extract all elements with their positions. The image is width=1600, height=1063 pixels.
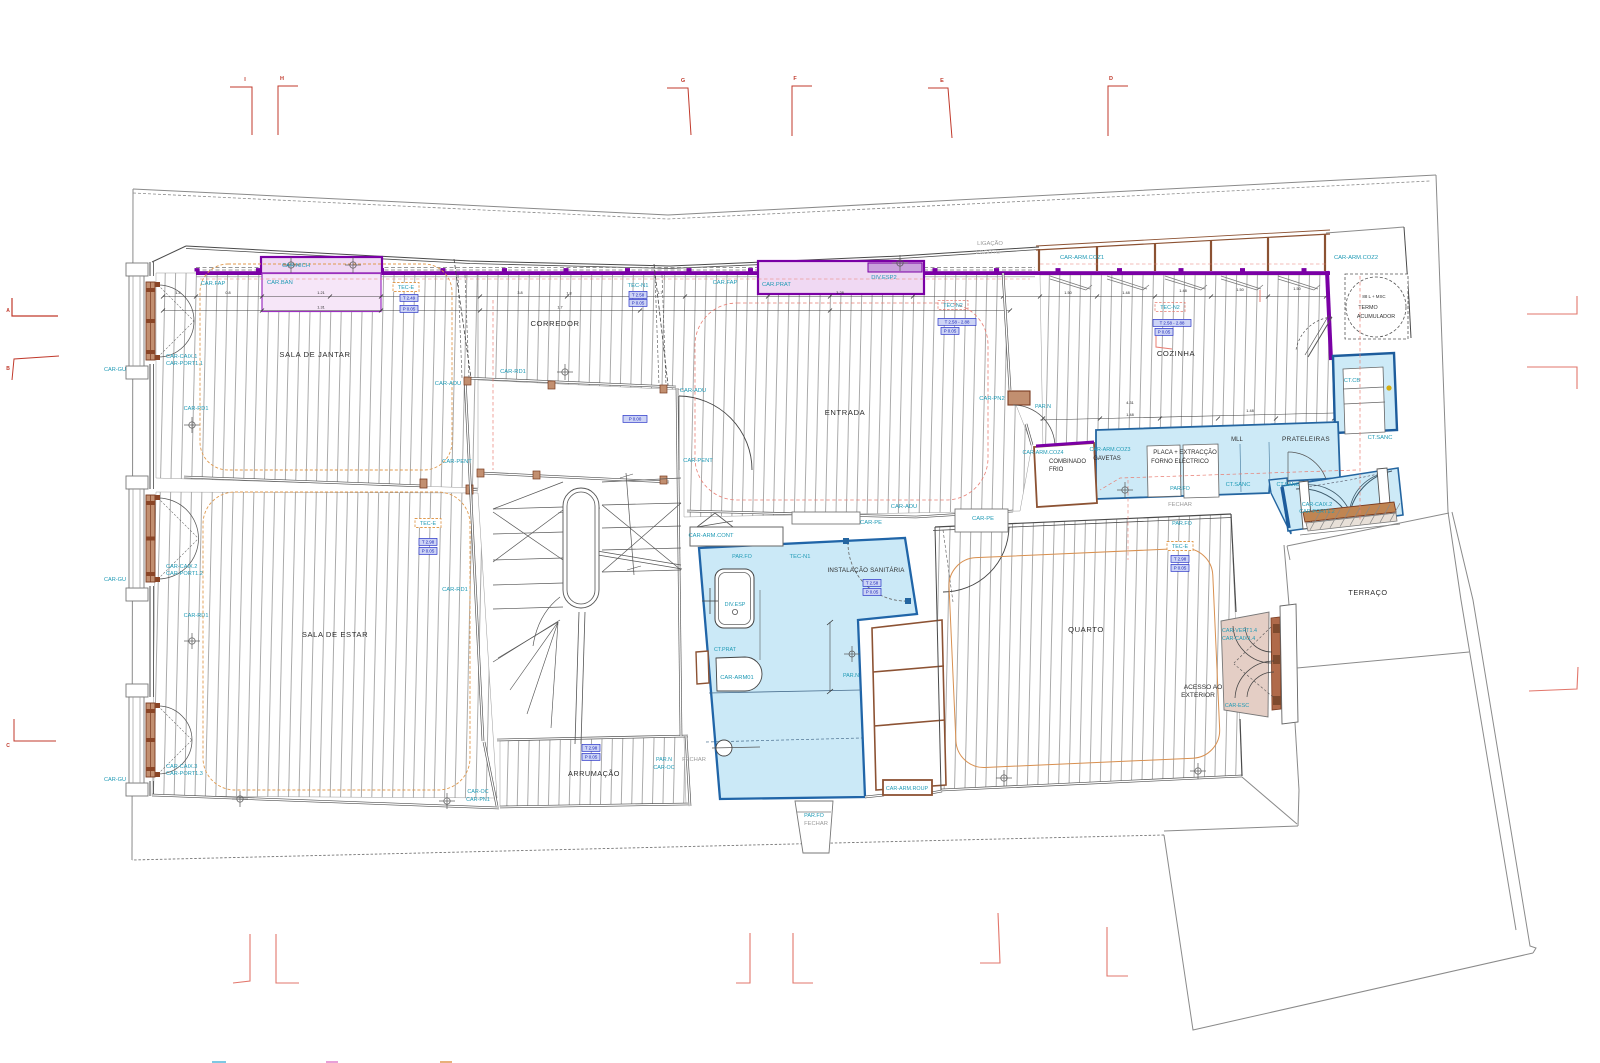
svg-text:P 0.05: P 0.05 [944,329,957,334]
svg-text:TERRAÇO: TERRAÇO [1348,588,1387,597]
svg-text:CORREDOR: CORREDOR [530,319,579,328]
svg-text:H: H [280,76,284,82]
svg-text:E: E [940,78,944,84]
svg-text:CAR-RD1: CAR-RD1 [184,613,209,619]
svg-text:3.28: 3.28 [836,291,843,295]
svg-text:CAR.FAP: CAR.FAP [713,280,738,286]
svg-text:CAR-ARM.COZ1: CAR-ARM.COZ1 [1060,255,1104,261]
svg-text:CAR-RD1: CAR-RD1 [500,369,526,375]
svg-text:CAR-GU: CAR-GU [104,577,126,583]
svg-text:CAR-ARM.CONT: CAR-ARM.CONT [688,533,734,539]
svg-text:CAR-ADU: CAR-ADU [435,381,461,387]
svg-text:COZINHA: COZINHA [1157,349,1196,358]
svg-text:TEC-E: TEC-E [398,285,415,291]
svg-text:CAR-VERT1.4: CAR-VERT1.4 [1222,628,1257,634]
svg-text:COMBINADO: COMBINADO [1049,459,1086,465]
svg-text:CT.PRAT: CT.PRAT [714,647,737,653]
svg-text:PAR.N: PAR.N [1035,404,1051,410]
svg-text:TEC-N1: TEC-N1 [790,554,811,560]
svg-text:ARRUMAÇÃO: ARRUMAÇÃO [568,769,620,778]
svg-text:C: C [6,743,10,749]
svg-text:CAR-PN2: CAR-PN2 [979,396,1004,402]
svg-text:DIV.ESP2: DIV.ESP2 [871,275,897,281]
svg-text:1.48: 1.48 [1246,409,1253,413]
svg-text:B: B [6,366,10,372]
svg-text:3.8: 3.8 [517,291,522,295]
svg-text:DIV.ESP: DIV.ESP [725,602,746,608]
svg-text:P 0.05: P 0.05 [632,301,645,306]
svg-text:1.4: 1.4 [175,291,180,295]
svg-text:1.7: 1.7 [557,306,562,310]
svg-text:P 0.05: P 0.05 [422,549,435,554]
svg-text:P 0.05: P 0.05 [403,307,416,312]
svg-text:CAR-PORT1.1: CAR-PORT1.1 [166,361,203,367]
svg-text:CAR-PE: CAR-PE [860,520,882,526]
svg-text:CAR-PENT: CAR-PENT [683,458,713,464]
svg-text:CAR-ARM.COZ2: CAR-ARM.COZ2 [1334,255,1378,261]
svg-text:CAR-ADU: CAR-ADU [680,388,706,394]
svg-text:1.7: 1.7 [657,291,662,295]
svg-text:1.50: 1.50 [1236,288,1243,292]
svg-text:1.50: 1.50 [1293,287,1300,291]
svg-text:1.31: 1.31 [317,306,324,310]
svg-text:GAVETAS: GAVETAS [1093,456,1120,462]
svg-text:1.48: 1.48 [1122,291,1129,295]
svg-text:CAR-PE: CAR-PE [972,516,994,522]
svg-text:PAR.FO: PAR.FO [732,554,752,560]
svg-text:CAR-ARM.ROUP: CAR-ARM.ROUP [886,786,929,792]
svg-text:CAR-PENT: CAR-PENT [442,459,472,465]
svg-text:CAR-PORT1.3: CAR-PORT1.3 [166,771,203,777]
svg-text:P 0.05: P 0.05 [866,590,879,595]
svg-text:SALA DE ESTAR: SALA DE ESTAR [302,630,368,639]
svg-text:SALA DE JANTAR: SALA DE JANTAR [279,350,350,359]
svg-text:TEC-E: TEC-E [1172,544,1189,550]
svg-text:PAR.FO: PAR.FO [1170,486,1190,492]
svg-text:FECHAR: FECHAR [1168,502,1192,508]
svg-text:G: G [681,78,685,84]
svg-text:CAR-PORT1.2: CAR-PORT1.2 [1299,509,1335,515]
svg-text:CAR-ARM.COZ3: CAR-ARM.COZ3 [1089,447,1130,453]
svg-text:CT.SANC: CT.SANC [1368,435,1393,441]
svg-text:CAR-CAIX.1: CAR-CAIX.1 [166,354,197,360]
svg-text:TEC-N2: TEC-N2 [1160,305,1179,311]
svg-text:88 L + MSC: 88 L + MSC [1362,294,1385,299]
svg-text:PAR.N: PAR.N [656,757,672,763]
svg-text:0.8: 0.8 [225,291,230,295]
svg-text:ENTRADA: ENTRADA [825,408,866,417]
svg-text:TEC-E: TEC-E [420,521,437,527]
svg-text:TEC-N2: TEC-N2 [943,303,962,309]
svg-text:CAR-OC: CAR-OC [467,789,488,795]
svg-text:EXTERIOR: EXTERIOR [1181,692,1215,699]
svg-text:T 2.49: T 2.49 [403,296,416,301]
svg-text:P 0.00: P 0.00 [629,417,642,422]
svg-text:PAR.FO: PAR.FO [804,813,824,819]
svg-text:CAR.FAP: CAR.FAP [201,281,226,287]
svg-text:LIGAÇÃO: LIGAÇÃO [977,240,1003,247]
svg-text:T 2.98: T 2.98 [585,746,598,751]
svg-text:QUARTO: QUARTO [1068,625,1104,634]
svg-text:INSTALAÇÃO SANITÁRIA: INSTALAÇÃO SANITÁRIA [827,567,905,574]
svg-text:PAR.N: PAR.N [843,673,859,679]
svg-text:1.48: 1.48 [1126,413,1133,417]
svg-text:4.31: 4.31 [1126,401,1133,405]
svg-text:P 0.05: P 0.05 [1174,566,1187,571]
svg-text:CAR-ARM.COZ4: CAR-ARM.COZ4 [1022,450,1063,456]
svg-text:ESGOTO: ESGOTO [976,250,1001,256]
svg-text:CAR-RD1: CAR-RD1 [184,406,209,412]
svg-text:T 2.58 - 2.88: T 2.58 - 2.88 [1160,321,1185,326]
svg-text:T 2.58 - 2.88: T 2.58 - 2.88 [945,320,970,325]
svg-text:FECHAR: FECHAR [804,821,828,827]
svg-text:CAR-CAIX.2: CAR-CAIX.2 [166,564,197,570]
svg-text:T 2.58: T 2.58 [632,293,645,298]
svg-text:A: A [6,308,10,314]
svg-text:CAR.BAN: CAR.BAN [267,280,293,286]
svg-text:ACESSO AO: ACESSO AO [1184,684,1222,691]
svg-text:T 2.98: T 2.98 [1174,557,1187,562]
svg-text:ACUMULADOR: ACUMULADOR [1357,314,1395,320]
svg-text:CAR-CAIX1.4: CAR-CAIX1.4 [1222,636,1255,642]
svg-text:FECHAR: FECHAR [682,757,706,763]
svg-text:1.21: 1.21 [317,291,324,295]
svg-text:CAR-OC: CAR-OC [653,765,674,771]
svg-text:CAR-ESC: CAR-ESC [1225,703,1249,709]
svg-text:T 2.58: T 2.58 [866,581,879,586]
svg-text:TERMO: TERMO [1358,305,1377,311]
svg-text:CAR-CAIX.3: CAR-CAIX.3 [166,764,197,770]
svg-text:CAR-PORT1.2: CAR-PORT1.2 [166,571,203,577]
svg-text:FORNO ELÉCTRICO: FORNO ELÉCTRICO [1151,458,1209,465]
svg-text:CAR.PRAT: CAR.PRAT [762,282,791,288]
svg-text:CAR-RD1: CAR-RD1 [442,587,468,593]
svg-text:CAR-ADU: CAR-ADU [891,504,917,510]
svg-text:CAR-CAIX.2: CAR-CAIX.2 [1302,502,1332,508]
svg-text:P 0.05: P 0.05 [585,755,598,760]
svg-text:PLACA + EXTRACÇÃO: PLACA + EXTRACÇÃO [1153,449,1217,456]
svg-text:FRIO: FRIO [1049,467,1064,473]
svg-text:TEC-N1: TEC-N1 [628,283,649,289]
svg-text:CAR.NICH: CAR.NICH [282,263,310,269]
svg-text:MLL: MLL [1231,437,1243,443]
svg-text:CT.SANC: CT.SANC [1226,482,1251,488]
svg-text:D: D [1109,76,1113,82]
svg-text:CAR-GU: CAR-GU [104,777,126,783]
svg-text:1.8: 1.8 [566,292,571,296]
svg-text:1.48: 1.48 [1179,289,1186,293]
svg-text:CAR-PN1: CAR-PN1 [466,797,490,803]
svg-text:T 2.98: T 2.98 [422,540,435,545]
svg-text:1.50: 1.50 [1064,291,1071,295]
svg-text:CT.CB: CT.CB [1344,378,1360,384]
svg-text:PRATELEIRAS: PRATELEIRAS [1282,436,1330,443]
svg-text:CAR-GU: CAR-GU [104,367,126,373]
svg-text:CAR-ARM01: CAR-ARM01 [720,675,754,681]
svg-text:CT.SANC: CT.SANC [1276,482,1299,488]
svg-text:PAR.FO: PAR.FO [1172,521,1192,527]
svg-text:P 0.05: P 0.05 [1158,330,1171,335]
